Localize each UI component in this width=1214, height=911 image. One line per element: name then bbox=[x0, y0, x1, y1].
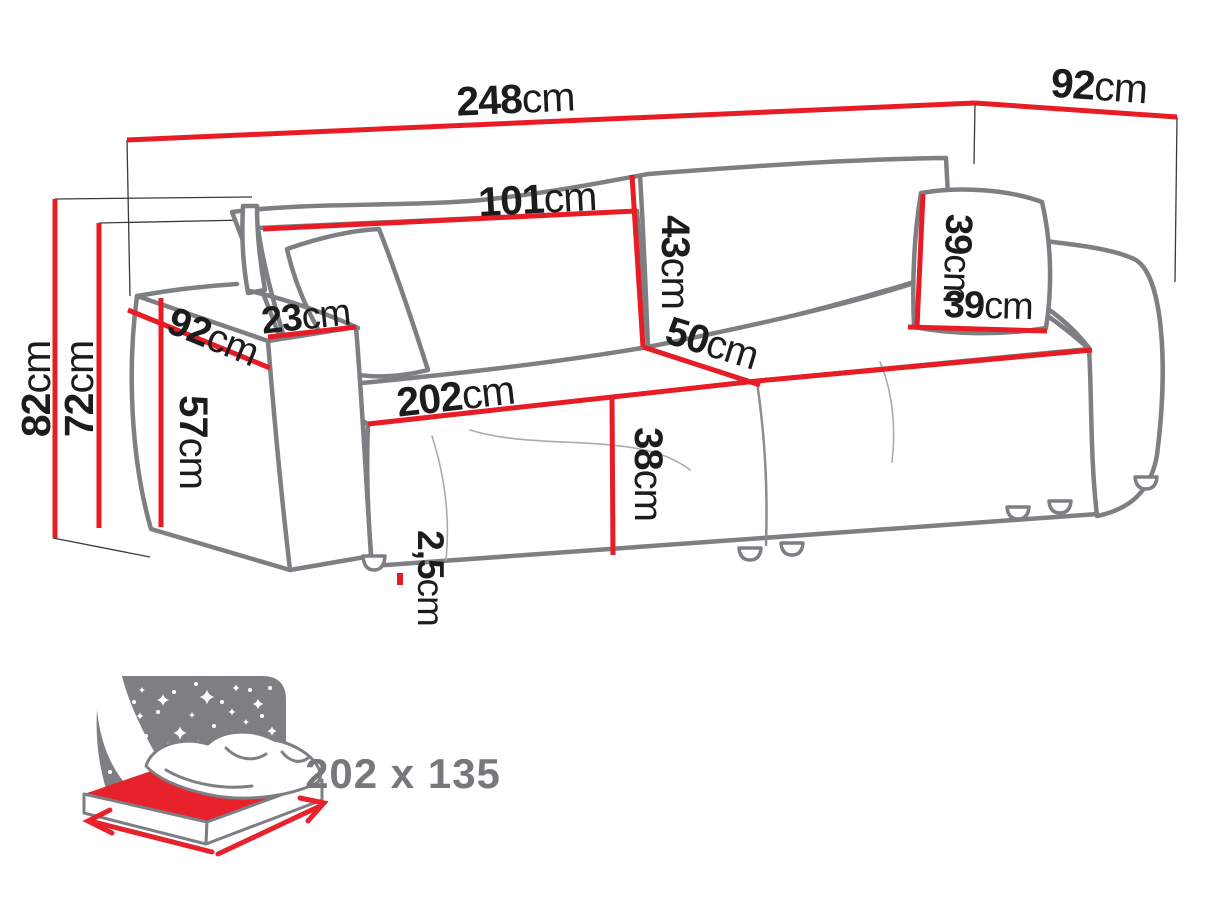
label-overall-width: 248cm bbox=[455, 73, 575, 124]
label-backrest-cushion-width: 101cm bbox=[477, 173, 597, 225]
sofa-leg bbox=[1049, 501, 1071, 513]
construction-line-right bbox=[1175, 117, 1177, 282]
construction-line-floor bbox=[53, 538, 150, 557]
sofa-leg bbox=[781, 543, 803, 555]
label-seat-height: 38cm bbox=[626, 427, 670, 521]
dim-line-seat-height bbox=[612, 397, 613, 555]
sleeping-area-size-label: 202 x 135 bbox=[305, 750, 501, 797]
sofa-leg bbox=[363, 556, 385, 570]
label-backrest-height: 72cm bbox=[56, 341, 102, 437]
sofa-left-armrest-top-back-edge bbox=[137, 284, 237, 296]
label-overall-height: 82cm bbox=[13, 341, 59, 437]
label-leg-height: 2,5cm bbox=[410, 530, 451, 626]
sofa-leg bbox=[1135, 477, 1157, 489]
label-armrest-height: 57cm bbox=[171, 395, 215, 489]
construction-line-72-top bbox=[99, 220, 247, 223]
construction-line-82-top bbox=[55, 197, 252, 199]
label-overall-depth: 92cm bbox=[1049, 60, 1148, 113]
sofa-leg bbox=[1007, 507, 1029, 519]
sofa-dimension-diagram: 248cm 92cm 101cm 43cm 82cm 72cm 57cm 92c… bbox=[0, 0, 1214, 911]
construction-line-back-corner bbox=[974, 103, 975, 164]
construction-line-left-top bbox=[127, 140, 130, 296]
label-pillow-width: 39cm bbox=[943, 284, 1033, 328]
sleeping-area-icon: 202 x 135 bbox=[84, 676, 501, 854]
diagram-canvas: 248cm 92cm 101cm 43cm 82cm 72cm 57cm 92c… bbox=[0, 0, 1214, 911]
label-backrest-cushion-height: 43cm bbox=[653, 215, 697, 309]
sofa-leg bbox=[739, 548, 761, 560]
